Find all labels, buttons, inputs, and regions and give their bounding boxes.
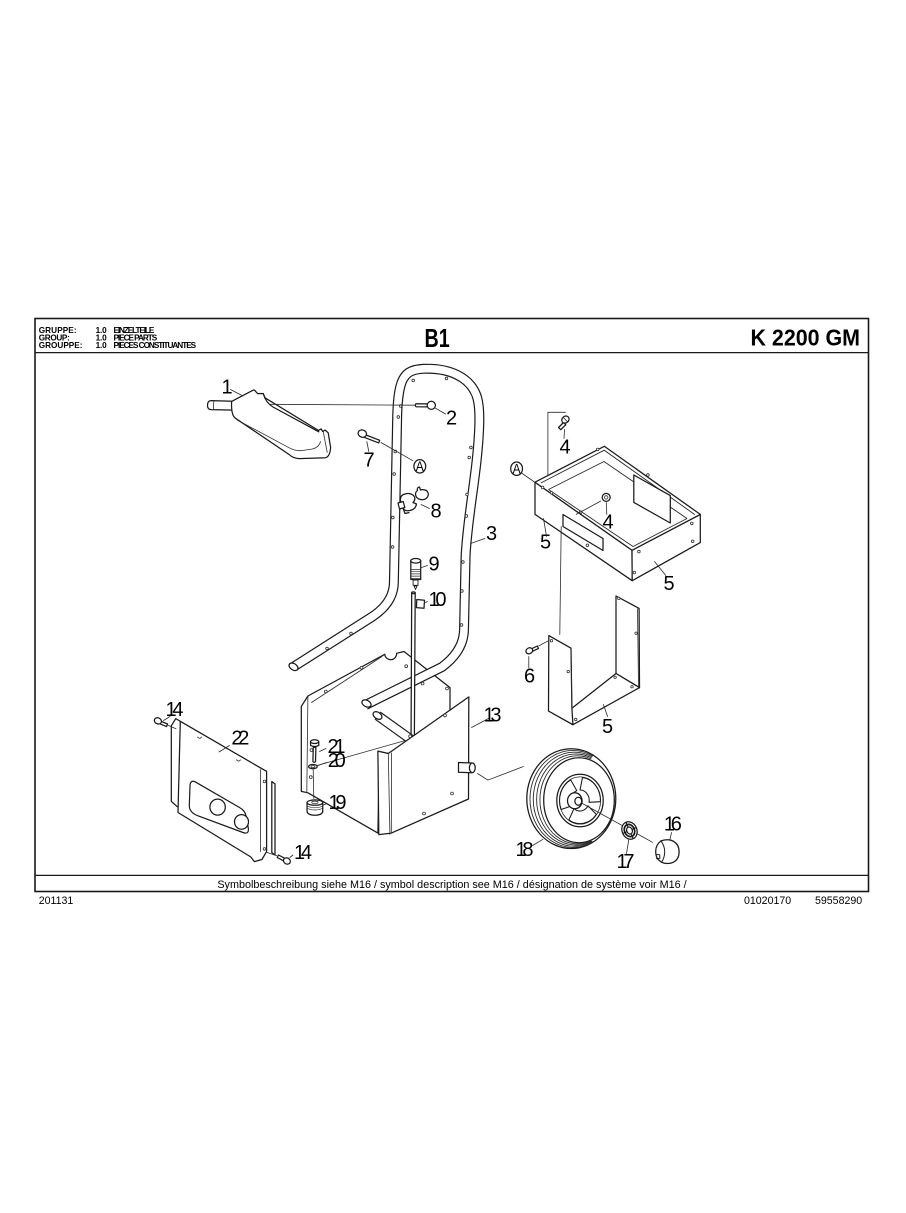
svg-text:B1: B1	[425, 325, 450, 353]
svg-text:6: 6	[524, 666, 535, 688]
svg-text:201131: 201131	[39, 895, 74, 907]
svg-text:4: 4	[560, 437, 571, 459]
svg-text:14: 14	[294, 842, 312, 864]
svg-text:5: 5	[602, 716, 613, 738]
svg-text:10: 10	[429, 589, 447, 611]
svg-text:59558290: 59558290	[815, 895, 862, 907]
svg-text:GROUPPE:: GROUPPE:	[39, 341, 83, 350]
svg-text:01020170: 01020170	[744, 895, 791, 907]
svg-text:17: 17	[617, 851, 635, 873]
svg-text:Symbolbeschreibung siehe M16 /: Symbolbeschreibung siehe M16 / symbol de…	[217, 879, 686, 891]
svg-text:1: 1	[222, 377, 233, 399]
svg-text:8: 8	[431, 501, 442, 523]
svg-text:2: 2	[446, 408, 457, 430]
svg-text:18: 18	[516, 839, 534, 861]
svg-text:K 2200 GM: K 2200 GM	[751, 324, 861, 350]
svg-text:22: 22	[231, 727, 249, 749]
svg-text:5: 5	[664, 573, 675, 595]
svg-text:20: 20	[328, 750, 346, 772]
svg-text:19: 19	[329, 792, 347, 814]
svg-text:9: 9	[429, 554, 440, 576]
svg-text:7: 7	[364, 450, 375, 472]
svg-text:1.0: 1.0	[96, 341, 108, 350]
svg-text:13: 13	[484, 705, 502, 727]
svg-text:3: 3	[486, 523, 497, 545]
svg-text:16: 16	[664, 814, 682, 836]
svg-text:A: A	[416, 459, 424, 474]
svg-text:5: 5	[540, 532, 551, 554]
svg-text:PIECES CONSTITUANTES: PIECES CONSTITUANTES	[114, 341, 197, 350]
svg-text:4: 4	[603, 512, 614, 534]
svg-text:A: A	[513, 462, 521, 477]
